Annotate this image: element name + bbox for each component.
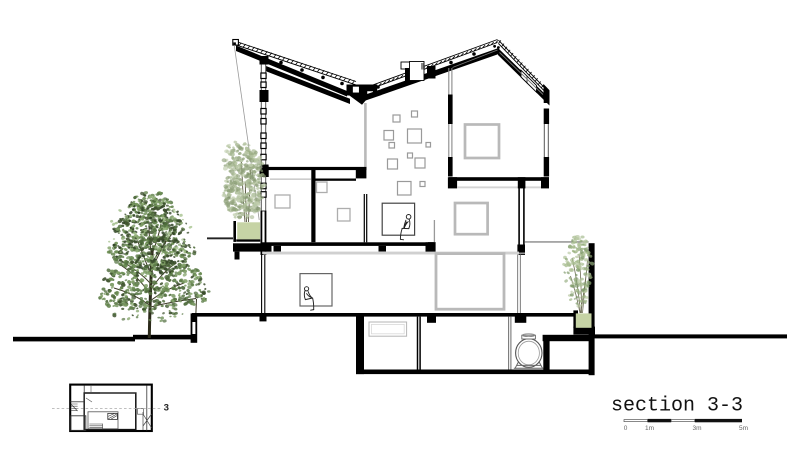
svg-text:0: 0 (624, 425, 628, 432)
svg-text:section 3-3: section 3-3 (611, 395, 743, 418)
svg-text:3m: 3m (692, 425, 701, 432)
svg-text:1m: 1m (645, 425, 654, 432)
svg-text:5m: 5m (739, 425, 748, 432)
svg-text:3: 3 (164, 402, 169, 413)
